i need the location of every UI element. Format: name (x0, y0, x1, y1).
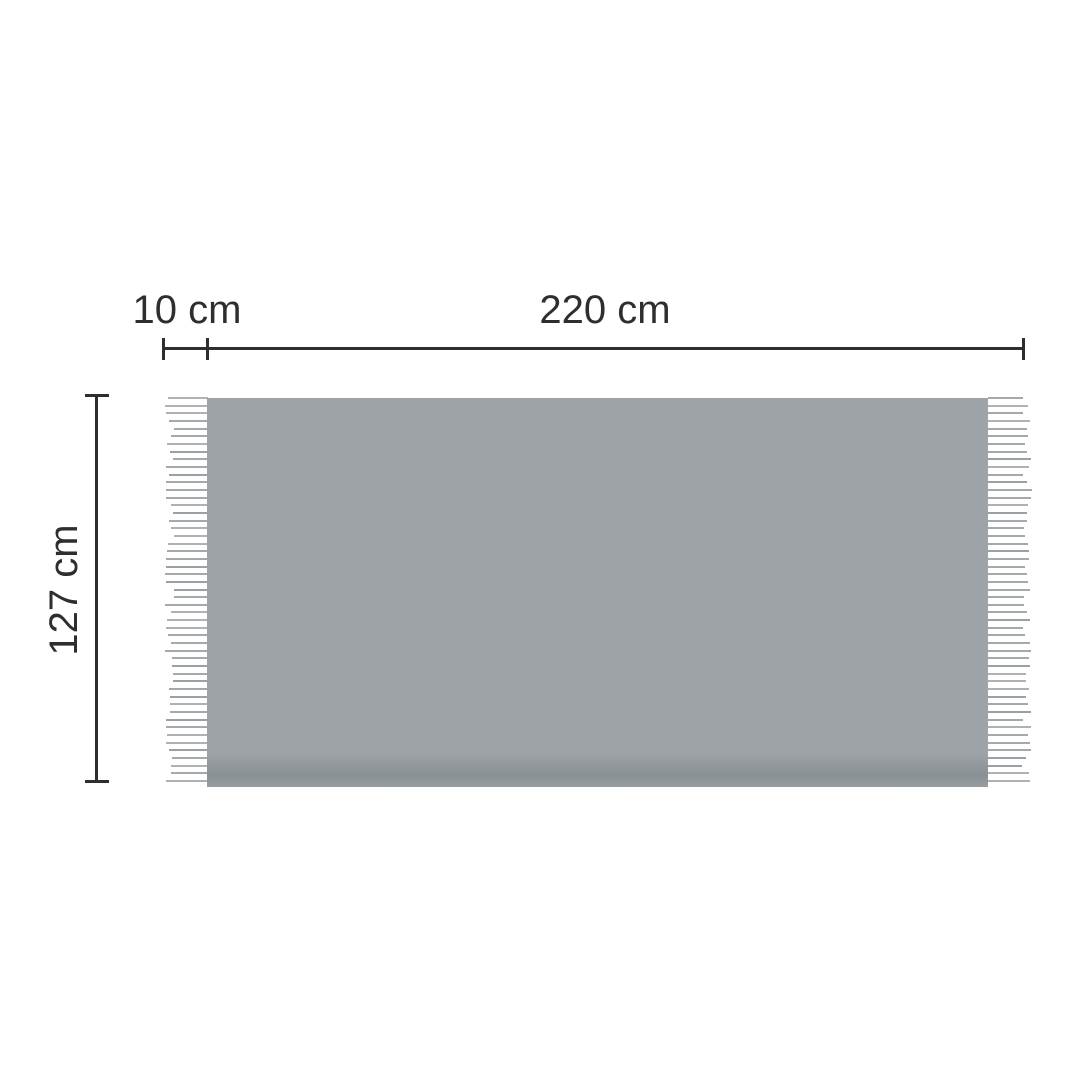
fringe-strand (988, 711, 1031, 713)
fringe-width-label: 10 cm (133, 290, 242, 330)
fringe-strand (172, 665, 208, 667)
fringe-strand (988, 634, 1025, 636)
fringe-strand (988, 581, 1028, 583)
fringe-strand (165, 650, 208, 652)
fringe-strand (988, 497, 1031, 499)
fringe-strand (988, 673, 1026, 675)
fringe-strand (988, 451, 1027, 453)
fringe-strand (988, 535, 1025, 537)
fringe-strand (988, 420, 1030, 422)
fringe-strand (988, 749, 1031, 751)
fringe-strand (988, 504, 1028, 506)
fringe-strand (169, 688, 208, 690)
fringe-strand (170, 696, 208, 698)
fringe-strand (988, 627, 1023, 629)
fringe-strand (988, 726, 1031, 728)
fringe-strand (166, 742, 208, 744)
fringe-strand (988, 680, 1026, 682)
fringe-strand (166, 489, 208, 491)
fringe-strand (166, 558, 208, 560)
fringe-strand (988, 742, 1030, 744)
fringe-strand (171, 611, 208, 613)
fringe-strand (174, 535, 208, 537)
blanket-fringe-left (164, 397, 208, 788)
fringe-strand (167, 734, 208, 736)
fringe-strand (169, 474, 208, 476)
fringe-strand (174, 596, 208, 598)
fringe-strand (168, 397, 208, 399)
fringe-strand (988, 527, 1024, 529)
fringe-strand (988, 772, 1029, 774)
fringe-strand (169, 420, 208, 422)
fringe-strand (165, 573, 208, 575)
fringe-strand (170, 703, 208, 705)
blanket-fringe-right (988, 397, 1032, 788)
fringe-strand (988, 734, 1028, 736)
fringe-strand (988, 520, 1027, 522)
fringe-strand (988, 412, 1023, 414)
fringe-strand (172, 657, 208, 659)
fringe-strand (988, 780, 1030, 782)
fringe-strand (171, 435, 208, 437)
body-width-label: 220 cm (539, 290, 670, 330)
fringe-strand (169, 520, 208, 522)
fringe-strand (171, 765, 208, 767)
fringe-strand (166, 726, 208, 728)
fringe-strand (988, 489, 1032, 491)
fringe-strand (168, 634, 208, 636)
fringe-strand (171, 642, 208, 644)
fringe-strand (166, 412, 208, 414)
dimension-tick-bottom (85, 780, 109, 783)
dimension-tick-top (85, 394, 109, 397)
fringe-strand (988, 558, 1029, 560)
height-label: 127 cm (44, 524, 84, 655)
fringe-strand (173, 673, 208, 675)
fringe-strand (988, 696, 1026, 698)
fringe-strand (988, 543, 1028, 545)
fringe-strand (171, 772, 208, 774)
fringe-strand (166, 627, 208, 629)
blanket-body (207, 398, 988, 787)
fringe-strand (988, 642, 1030, 644)
fringe-strand (171, 527, 208, 529)
fringe-strand (988, 466, 1029, 468)
fringe-strand (170, 711, 208, 713)
fringe-strand (988, 757, 1026, 759)
fringe-strand (988, 474, 1023, 476)
fringe-strand (166, 719, 208, 721)
fringe-strand (166, 581, 208, 583)
dimension-tick-mid (206, 338, 209, 360)
fringe-strand (988, 397, 1023, 399)
fringe-strand (169, 749, 208, 751)
fringe-strand (988, 589, 1030, 591)
fringe-strand (174, 589, 208, 591)
fringe-strand (174, 428, 208, 430)
fringe-strand (988, 573, 1027, 575)
fringe-strand (166, 497, 208, 499)
fringe-strand (165, 405, 208, 407)
fringe-strand (173, 512, 208, 514)
fringe-strand (166, 481, 208, 483)
fringe-strand (988, 550, 1029, 552)
fringe-strand (988, 665, 1030, 667)
fringe-strand (167, 619, 208, 621)
fringe-strand (166, 780, 208, 782)
fringe-strand (988, 596, 1024, 598)
fringe-strand (171, 504, 208, 506)
fringe-strand (988, 512, 1027, 514)
fringe-strand (168, 543, 208, 545)
fringe-strand (988, 566, 1025, 568)
fringe-strand (988, 611, 1027, 613)
fringe-strand (988, 650, 1031, 652)
fringe-strand (988, 428, 1027, 430)
fringe-strand (988, 657, 1029, 659)
fringe-strand (988, 458, 1031, 460)
fringe-strand (166, 466, 208, 468)
dimension-tick-left (162, 338, 165, 360)
fringe-strand (166, 566, 208, 568)
fringe-strand (173, 680, 208, 682)
dimension-tick-right (1022, 338, 1025, 360)
fringe-strand (988, 703, 1028, 705)
fringe-strand (988, 435, 1028, 437)
fringe-strand (173, 458, 208, 460)
fringe-strand (988, 405, 1028, 407)
fringe-strand (988, 443, 1025, 445)
fringe-strand (167, 443, 208, 445)
horizontal-dimension-line (163, 347, 1025, 350)
fringe-strand (988, 719, 1023, 721)
fringe-strand (170, 451, 208, 453)
vertical-dimension-line (95, 395, 98, 783)
product-dimension-diagram: 10 cm 220 cm 127 cm (0, 0, 1080, 1080)
fringe-strand (988, 765, 1022, 767)
fringe-strand (988, 481, 1027, 483)
fringe-strand (988, 688, 1029, 690)
fringe-strand (988, 604, 1024, 606)
fringe-strand (165, 604, 208, 606)
fringe-strand (167, 550, 208, 552)
fringe-strand (172, 757, 208, 759)
fringe-strand (988, 619, 1030, 621)
